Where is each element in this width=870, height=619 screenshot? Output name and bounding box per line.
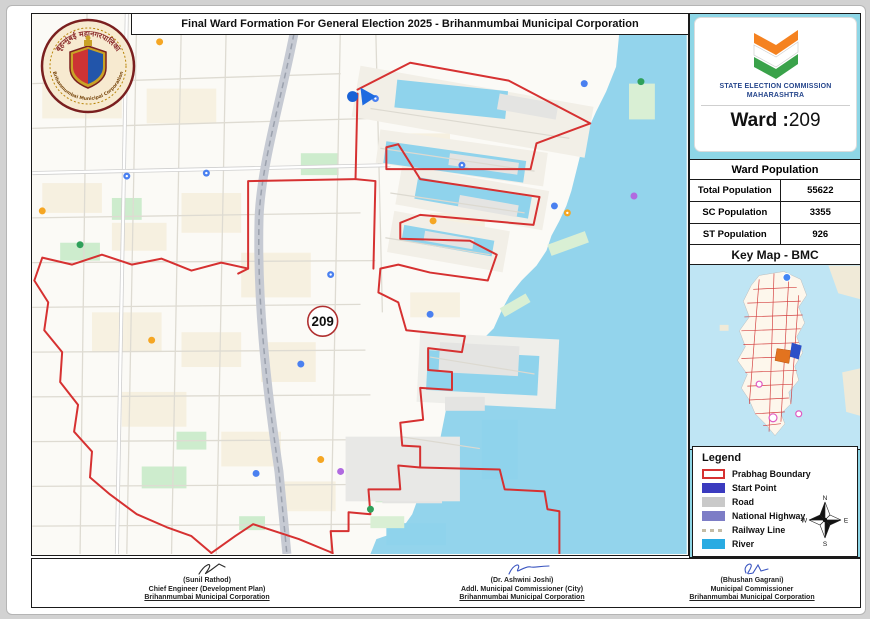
keymap-header: Key Map - BMC [689,244,861,265]
signature-ink [487,561,557,578]
sec-name-line1: STATE ELECTION COMMISSION [695,83,856,92]
divider [701,105,850,106]
signature-ink [175,561,239,578]
ward-label: Ward : [730,110,788,131]
road-swatch [702,497,725,507]
legend-title: Legend [702,452,857,464]
legend-item: Prabhag Boundary [702,467,857,481]
keymap [689,264,861,450]
table-row: Total Population 55622 [690,180,860,202]
ward-number-heading: Ward :209 [695,110,856,132]
map-sheet: 209 Final Ward Formation For General Ele… [6,5,866,615]
signatory-name: (Bhushan Gagrani) [632,577,866,586]
population-row-label: Total Population [690,180,781,201]
table-row: ST Population 926 [690,224,860,245]
signatory-org: Brihanmumbai Municipal Corporation [387,594,657,603]
signature-block: (Bhushan Gagrani) Municipal Commissioner… [632,561,866,603]
compass-e: E [844,518,849,525]
population-row-value: 926 [781,224,860,245]
signatory-name: (Sunil Rathod) [92,577,322,586]
signatory-role: Addl. Municipal Commissioner (City) [387,586,657,595]
signature-ink [720,561,784,578]
national-highway-swatch [702,511,725,521]
ward-number-badge: 209 [308,306,338,336]
signatory-name: (Dr. Ashwini Joshi) [387,577,657,586]
signatory-role: Municipal Commissioner [632,586,866,595]
sec-logo-icon [745,25,807,81]
population-row-value: 55622 [781,180,860,201]
signatory-org: Brihanmumbai Municipal Corporation [632,594,866,603]
population-table-header: Ward Population [690,160,860,180]
signatory-role: Chief Engineer (Development Plan) [92,586,322,595]
sec-logo-box: STATE ELECTION COMMISSION MAHARASHTRA Wa… [694,17,857,152]
signature-block: (Dr. Ashwini Joshi) Addl. Municipal Comm… [387,561,657,603]
bmc-logo: बृहन्मुंबई महानगरपालिका Brihanmumbai Mun… [40,18,136,114]
info-panel: STATE ELECTION COMMISSION MAHARASHTRA Wa… [689,13,861,558]
ward-number-badge-label: 209 [312,314,334,329]
compass-s: S [823,541,828,547]
signature-strip: (Sunil Rathod) Chief Engineer (Developme… [31,558,861,608]
compass-rose-icon: N S E W [801,493,849,552]
page-title: Final Ward Formation For General Electio… [131,13,689,35]
prabhag-boundary-swatch [702,469,725,479]
compass-n: N [823,495,828,502]
legend: Legend Prabhag Boundary Start Point Road… [692,446,858,557]
start-point-swatch [702,483,725,493]
signatory-org: Brihanmumbai Municipal Corporation [92,594,322,603]
ward-number: 209 [789,110,821,131]
population-row-label: ST Population [690,224,781,245]
keymap-highlighted-ward [775,349,791,364]
compass-w: W [801,518,808,525]
population-row-label: SC Population [690,202,781,223]
ward-population-table: Ward Population Total Population 55622 S… [689,159,861,246]
table-row: SC Population 3355 [690,202,860,224]
railway-line-swatch [702,529,725,532]
population-row-value: 3355 [781,202,860,223]
signature-block: (Sunil Rathod) Chief Engineer (Developme… [92,561,322,603]
sec-name-line2: MAHARASHTRA [695,92,856,101]
river-swatch [702,539,725,549]
